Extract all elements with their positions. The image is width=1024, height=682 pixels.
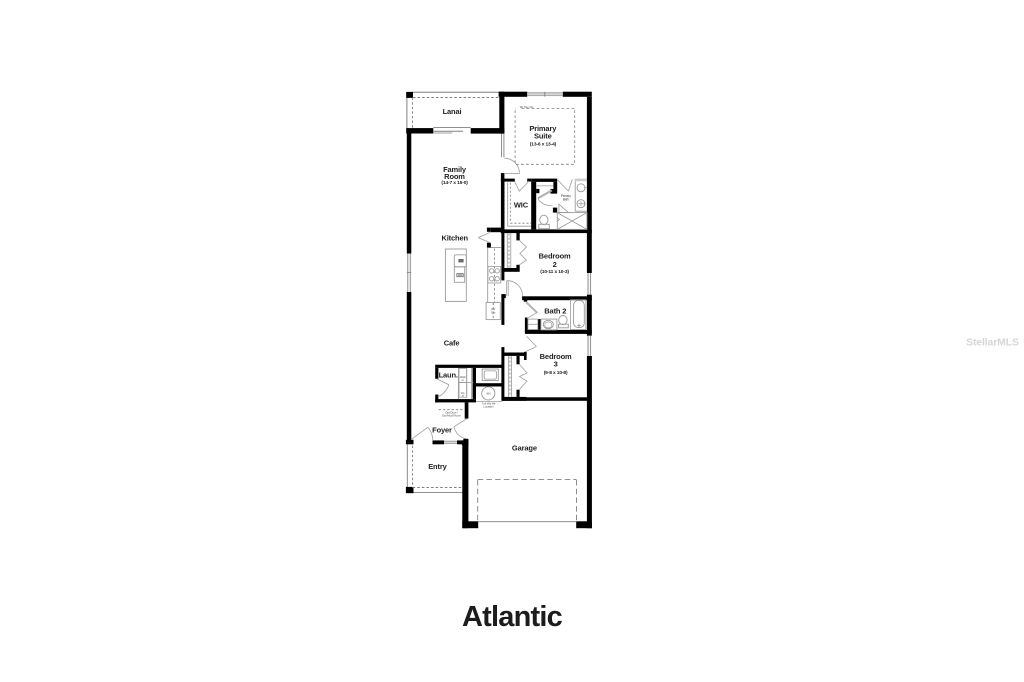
svg-text:(9-8 x 10-8): (9-8 x 10-8) (544, 370, 568, 376)
svg-text:Laun.: Laun. (439, 371, 458, 380)
svg-text:WIC: WIC (514, 201, 529, 210)
svg-text:9ft Tray Clg: 9ft Tray Clg (520, 105, 534, 109)
svg-text:Kitchen: Kitchen (441, 234, 468, 243)
svg-text:Cafe: Cafe (444, 339, 460, 348)
svg-text:(14-7 x 15-0): (14-7 x 15-0) (441, 180, 468, 186)
svg-text:er: er (462, 378, 464, 382)
svg-text:(13-6 x 13-4): (13-6 x 13-4) (530, 142, 557, 148)
svg-text:WH: WH (486, 392, 490, 396)
svg-text:Bath: Bath (563, 197, 569, 201)
svg-text:Entry: Entry (428, 462, 447, 471)
svg-text:3: 3 (554, 360, 558, 369)
svg-text:Foyer: Foyer (432, 425, 452, 434)
svg-text:2: 2 (553, 260, 557, 269)
svg-text:(10-11 x 10-3): (10-11 x 10-3) (540, 269, 569, 275)
svg-text:Spc: Spc (491, 310, 496, 314)
svg-text:Opt Mud Room: Opt Mud Room (442, 414, 462, 418)
svg-text:Garage: Garage (512, 444, 537, 453)
svg-text:Lanai: Lanai (443, 107, 462, 116)
svg-text:StellarMLS: StellarMLS (966, 337, 1019, 349)
svg-text:Location: Location (483, 405, 494, 409)
svg-text:Room: Room (444, 172, 465, 181)
svg-text:Atlantic: Atlantic (462, 601, 563, 633)
svg-text:Bath 2: Bath 2 (544, 307, 566, 316)
svg-text:Suite: Suite (534, 132, 552, 141)
svg-text:er: er (462, 394, 464, 398)
